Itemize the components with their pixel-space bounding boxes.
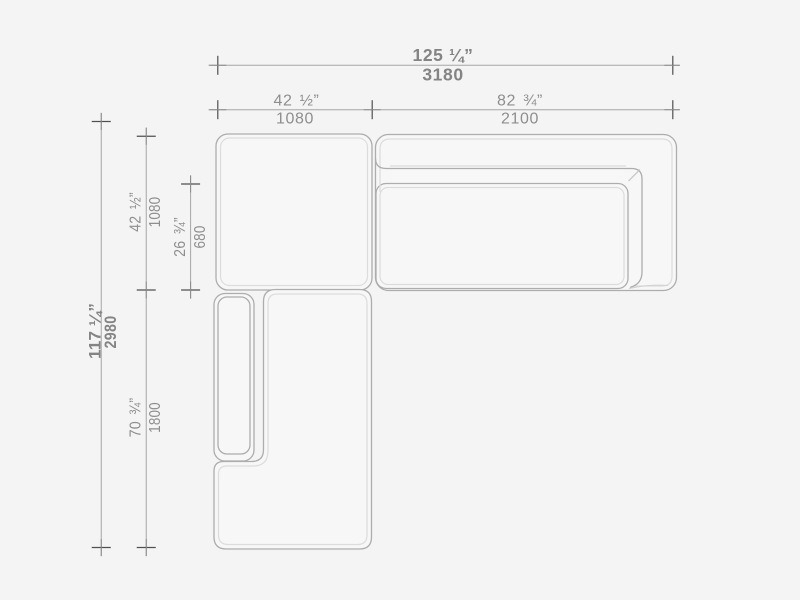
svg-text:82 ¾”: 82 ¾” <box>497 92 543 109</box>
svg-text:680: 680 <box>192 225 209 248</box>
svg-text:26 ¾”: 26 ¾” <box>173 217 190 257</box>
svg-text:42 ½”: 42 ½” <box>274 92 320 109</box>
svg-text:70 ¾”: 70 ¾” <box>128 398 145 438</box>
svg-text:1080: 1080 <box>276 111 314 128</box>
svg-text:125 ¼”: 125 ¼” <box>412 45 473 65</box>
svg-text:3180: 3180 <box>422 65 463 85</box>
svg-text:1080: 1080 <box>147 197 164 228</box>
svg-text:1800: 1800 <box>147 402 164 433</box>
svg-text:42 ½”: 42 ½” <box>128 192 145 232</box>
svg-text:2100: 2100 <box>501 111 539 128</box>
svg-text:2980: 2980 <box>102 315 120 348</box>
